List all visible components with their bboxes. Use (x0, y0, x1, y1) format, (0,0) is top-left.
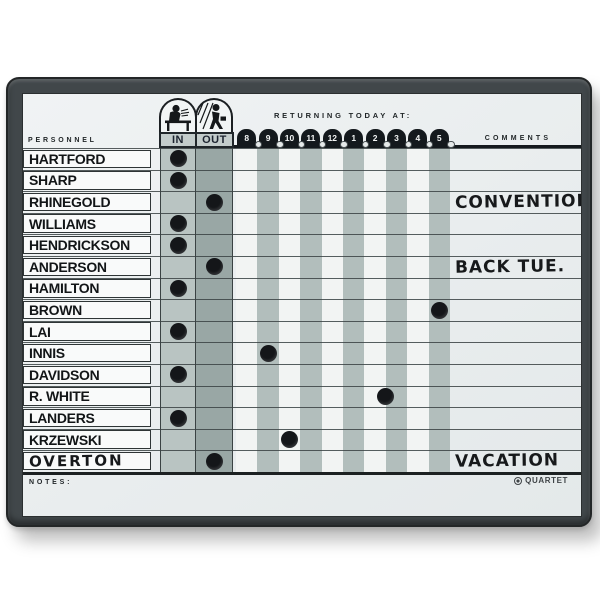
in-magnet (170, 215, 187, 232)
personnel-name-strip: RHINEGOLD (23, 193, 151, 211)
personnel-name-strip: DAVIDSON (23, 366, 151, 384)
return-time-magnet (431, 302, 448, 319)
personnel-name-strip: INNIS (23, 344, 151, 362)
tab-pin (383, 141, 391, 149)
personnel-name: WILLIAMS (29, 216, 96, 232)
tab-pin (405, 141, 413, 149)
personnel-name-strip: LAI (23, 322, 151, 340)
brand-logo-text: QUARTET (525, 476, 568, 485)
in-magnet (170, 150, 187, 167)
personnel-name-strip: HARTFORD (23, 150, 151, 168)
tab-pin (255, 141, 263, 149)
comment-text: CONVENTION (455, 191, 582, 213)
in-magnet (170, 237, 187, 254)
personnel-name-strip: R. WHITE (23, 387, 151, 405)
personnel-name-strip: HENDRICKSON (23, 236, 151, 254)
comment-text: BACK TUE. (455, 256, 565, 278)
grid-stripe (386, 148, 407, 472)
personnel-name: R. WHITE (29, 388, 90, 404)
row-line (23, 472, 581, 475)
tab-pin (362, 141, 370, 149)
brand-logo: QUARTET (473, 476, 568, 485)
personnel-name: LANDERS (29, 410, 95, 426)
personnel-name: RHINEGOLD (29, 194, 110, 210)
personnel-name-strip: KRZEWSKI (23, 430, 151, 448)
personnel-name-strip: HAMILTON (23, 279, 151, 297)
in-magnet (170, 366, 187, 383)
brand-logo-icon (514, 477, 522, 485)
in-magnet (170, 410, 187, 427)
personnel-name: HAMILTON (29, 280, 99, 296)
personnel-name: DAVIDSON (29, 367, 99, 383)
in-magnet (170, 323, 187, 340)
personnel-name-strip: LANDERS (23, 409, 151, 427)
inout-board-frame: PERSONNEL RETURNING TODAY AT: COMMENTS (6, 77, 592, 527)
personnel-name: ANDERSON (29, 259, 107, 275)
board-grid: 8910111212345HARTFORDSHARPRHINEGOLDCONVE… (23, 94, 581, 516)
time-slot-tab: 8 (237, 129, 256, 145)
personnel-name: INNIS (29, 345, 65, 361)
personnel-name: SHARP (29, 172, 77, 188)
out-magnet (206, 194, 223, 211)
comment-text: VACATION (455, 450, 559, 471)
in-magnet (170, 172, 187, 189)
personnel-name-strip: ANDERSON (23, 258, 151, 276)
grid-stripe (257, 148, 278, 472)
tab-pin (340, 141, 348, 149)
tab-pin (447, 141, 455, 149)
personnel-name: HENDRICKSON (29, 237, 130, 253)
return-time-magnet (260, 345, 277, 362)
notes-label: NOTES: (29, 479, 72, 486)
personnel-name-strip: BROWN (23, 301, 151, 319)
personnel-name-strip: SHARP (23, 171, 151, 189)
grid-stripe (343, 148, 364, 472)
board-surface: PERSONNEL RETURNING TODAY AT: COMMENTS (22, 93, 582, 517)
personnel-name-strip: OVERTON (23, 452, 151, 470)
out-magnet (206, 453, 223, 470)
personnel-name: HARTFORD (29, 151, 105, 167)
personnel-name-strip: WILLIAMS (23, 214, 151, 232)
personnel-name: BROWN (29, 302, 82, 318)
personnel-name: OVERTON (29, 452, 124, 471)
tab-pin (276, 141, 284, 149)
in-magnet (170, 280, 187, 297)
grid-stripe (300, 148, 321, 472)
personnel-name: LAI (29, 324, 51, 340)
return-time-magnet (281, 431, 298, 448)
personnel-name: KRZEWSKI (29, 432, 101, 448)
tab-pin (298, 141, 306, 149)
